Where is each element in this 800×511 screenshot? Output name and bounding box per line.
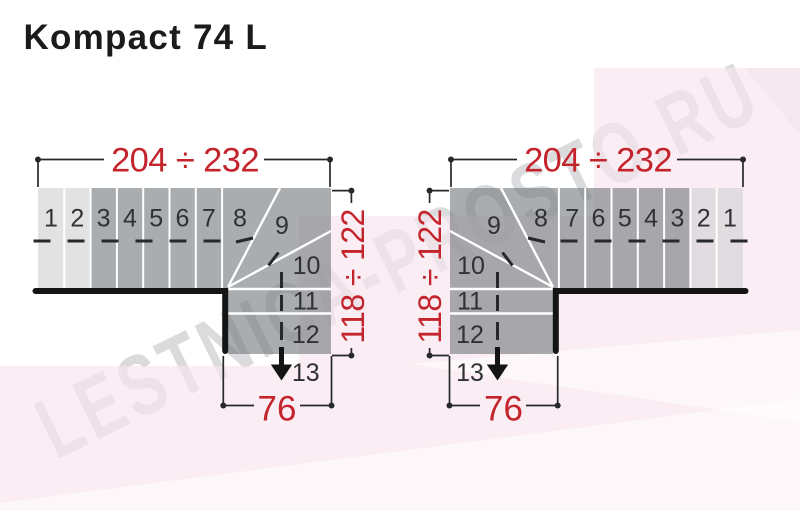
- svg-text:76: 76: [484, 390, 523, 429]
- svg-text:118 ÷ 122: 118 ÷ 122: [335, 209, 371, 343]
- svg-text:4: 4: [644, 205, 658, 233]
- svg-text:6: 6: [176, 205, 190, 233]
- svg-text:11: 11: [457, 288, 483, 316]
- svg-text:5: 5: [149, 205, 163, 233]
- svg-text:118 ÷ 122: 118 ÷ 122: [412, 209, 448, 343]
- svg-text:Kompact 74 L: Kompact 74 L: [24, 18, 269, 57]
- svg-text:6: 6: [592, 205, 606, 233]
- svg-text:204 ÷ 232: 204 ÷ 232: [111, 142, 259, 180]
- svg-text:3: 3: [97, 205, 111, 233]
- svg-text:13: 13: [292, 359, 320, 387]
- svg-text:2: 2: [697, 205, 711, 233]
- svg-text:76: 76: [258, 390, 297, 429]
- svg-text:12: 12: [456, 321, 484, 349]
- svg-text:10: 10: [457, 252, 485, 280]
- svg-text:9: 9: [275, 212, 289, 240]
- svg-text:11: 11: [293, 288, 319, 316]
- svg-text:7: 7: [202, 205, 216, 233]
- svg-text:1: 1: [723, 205, 737, 233]
- svg-text:4: 4: [123, 205, 137, 233]
- svg-text:2: 2: [70, 205, 84, 233]
- svg-text:13: 13: [456, 359, 484, 387]
- svg-text:1: 1: [44, 205, 58, 233]
- svg-text:8: 8: [534, 205, 548, 233]
- svg-text:3: 3: [670, 205, 684, 233]
- svg-text:9: 9: [487, 212, 501, 240]
- svg-text:12: 12: [292, 321, 320, 349]
- svg-text:5: 5: [618, 205, 632, 233]
- svg-text:7: 7: [565, 205, 579, 233]
- svg-text:10: 10: [293, 252, 321, 280]
- svg-text:8: 8: [233, 205, 247, 233]
- svg-text:204 ÷ 232: 204 ÷ 232: [524, 142, 672, 180]
